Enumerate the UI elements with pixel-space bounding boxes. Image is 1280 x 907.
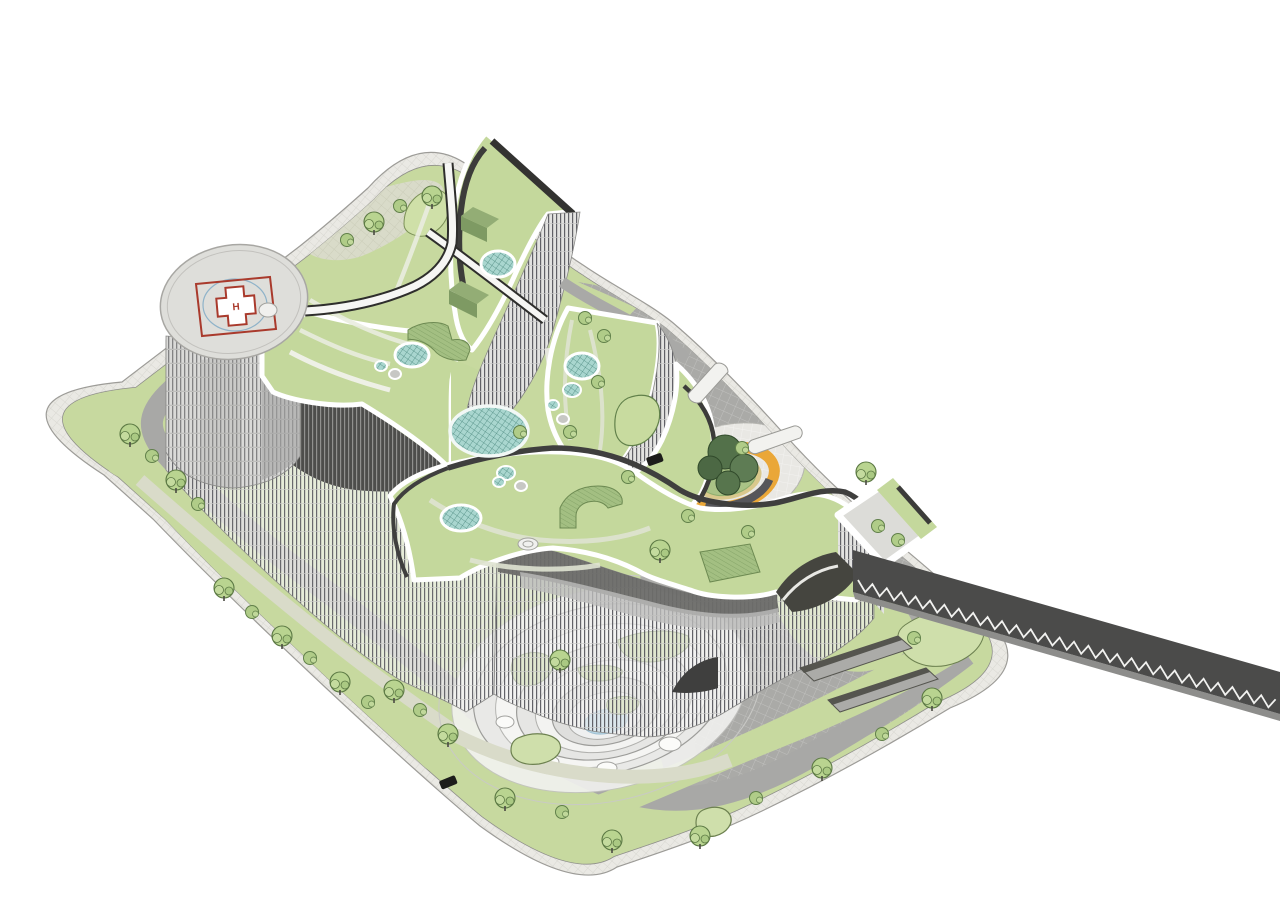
svg-text:H: H [232,302,240,314]
